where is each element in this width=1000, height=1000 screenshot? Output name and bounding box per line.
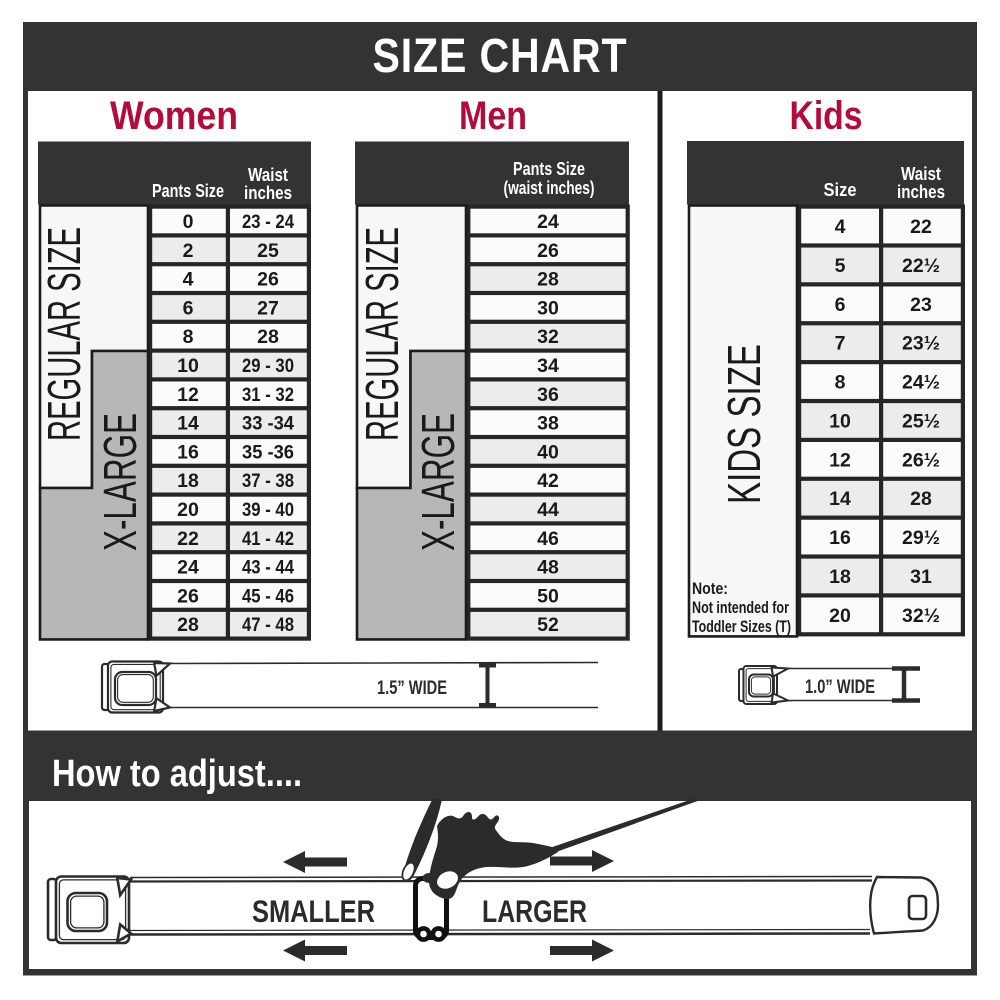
svg-text:REGULAR SIZE: REGULAR SIZE [38, 227, 90, 441]
svg-text:45 - 46: 45 - 46 [242, 585, 294, 607]
svg-text:31: 31 [910, 566, 932, 588]
svg-text:30: 30 [537, 297, 559, 319]
svg-text:23: 23 [910, 294, 932, 316]
svg-text:50: 50 [537, 585, 559, 607]
svg-text:Waist: Waist [248, 165, 288, 185]
svg-text:47 - 48: 47 - 48 [242, 614, 294, 636]
svg-text:31 - 32: 31 - 32 [242, 384, 294, 406]
svg-text:34: 34 [537, 355, 559, 377]
svg-text:20: 20 [177, 499, 199, 521]
svg-text:10: 10 [829, 410, 851, 432]
svg-text:1.0” WIDE: 1.0” WIDE [805, 677, 875, 698]
svg-text:10: 10 [177, 355, 199, 377]
svg-text:28: 28 [257, 326, 279, 348]
svg-text:4: 4 [183, 269, 194, 291]
svg-text:24: 24 [177, 557, 199, 579]
svg-text:42: 42 [537, 470, 559, 492]
svg-text:35 -36: 35 -36 [242, 441, 294, 463]
svg-text:7: 7 [835, 333, 846, 355]
svg-text:18: 18 [829, 566, 851, 588]
svg-text:32: 32 [537, 326, 559, 348]
svg-text:Note:: Note: [692, 580, 728, 598]
svg-text:Women: Women [110, 94, 238, 138]
svg-text:4: 4 [835, 216, 846, 238]
svg-text:24: 24 [537, 211, 559, 233]
svg-text:20: 20 [829, 605, 851, 627]
svg-text:16: 16 [829, 527, 851, 549]
svg-text:22: 22 [910, 216, 932, 238]
svg-text:26: 26 [177, 585, 199, 607]
svg-text:44: 44 [537, 499, 559, 521]
svg-text:6: 6 [835, 294, 846, 316]
svg-text:0: 0 [183, 211, 194, 233]
svg-text:inches: inches [897, 182, 945, 202]
svg-text:33 -34: 33 -34 [242, 413, 294, 435]
svg-text:22½: 22½ [902, 255, 940, 277]
svg-text:38: 38 [537, 413, 559, 435]
svg-text:23 - 24: 23 - 24 [242, 211, 294, 233]
svg-text:LARGER: LARGER [482, 893, 587, 929]
svg-text:REGULAR SIZE: REGULAR SIZE [356, 227, 408, 441]
svg-text:27: 27 [257, 297, 279, 319]
svg-text:37 - 38: 37 - 38 [242, 470, 294, 492]
svg-text:39 - 40: 39 - 40 [242, 499, 294, 521]
svg-text:28: 28 [537, 269, 559, 291]
svg-text:2: 2 [183, 240, 194, 262]
svg-text:inches: inches [244, 183, 292, 203]
svg-text:24½: 24½ [902, 372, 940, 394]
svg-text:18: 18 [177, 470, 199, 492]
svg-text:Pants Size: Pants Size [513, 159, 585, 179]
svg-text:X-LARGE: X-LARGE [412, 413, 464, 551]
svg-text:14: 14 [177, 413, 199, 435]
svg-text:6: 6 [183, 297, 194, 319]
svg-text:14: 14 [829, 488, 851, 510]
svg-text:Not intended for: Not intended for [692, 599, 789, 617]
svg-text:22: 22 [177, 528, 199, 550]
svg-text:48: 48 [537, 557, 559, 579]
svg-text:26: 26 [537, 240, 559, 262]
svg-text:Waist: Waist [901, 164, 941, 184]
svg-text:Men: Men [459, 94, 527, 138]
svg-text:Size: Size [824, 180, 857, 200]
svg-text:25½: 25½ [902, 410, 940, 432]
svg-text:X-LARGE: X-LARGE [94, 413, 146, 551]
svg-text:40: 40 [537, 441, 559, 463]
svg-text:Kids: Kids [790, 94, 863, 138]
svg-text:Pants Size: Pants Size [152, 181, 224, 201]
svg-text:32½: 32½ [902, 605, 940, 627]
svg-text:43 - 44: 43 - 44 [242, 557, 294, 579]
svg-text:28: 28 [910, 488, 932, 510]
svg-text:36: 36 [537, 384, 559, 406]
svg-text:8: 8 [835, 372, 846, 394]
svg-text:23½: 23½ [902, 333, 940, 355]
svg-text:52: 52 [537, 614, 559, 636]
svg-text:How to adjust....: How to adjust.... [52, 753, 302, 795]
svg-text:25: 25 [257, 240, 279, 262]
svg-text:KIDS SIZE: KIDS SIZE [718, 344, 770, 504]
svg-text:26: 26 [257, 269, 279, 291]
svg-text:12: 12 [177, 384, 199, 406]
svg-text:8: 8 [183, 326, 194, 348]
svg-text:29 - 30: 29 - 30 [242, 355, 294, 377]
svg-text:46: 46 [537, 528, 559, 550]
svg-text:SIZE CHART: SIZE CHART [373, 30, 628, 83]
svg-text:29½: 29½ [902, 527, 940, 549]
svg-text:12: 12 [829, 449, 851, 471]
svg-text:Toddler Sizes (T): Toddler Sizes (T) [692, 618, 791, 636]
svg-text:(waist inches): (waist inches) [504, 178, 595, 198]
svg-text:41 - 42: 41 - 42 [242, 528, 294, 550]
svg-text:SMALLER: SMALLER [252, 893, 375, 929]
svg-text:28: 28 [177, 614, 199, 636]
svg-text:1.5” WIDE: 1.5” WIDE [377, 678, 447, 699]
svg-text:16: 16 [177, 441, 199, 463]
svg-text:5: 5 [835, 255, 846, 277]
svg-text:26½: 26½ [902, 449, 940, 471]
